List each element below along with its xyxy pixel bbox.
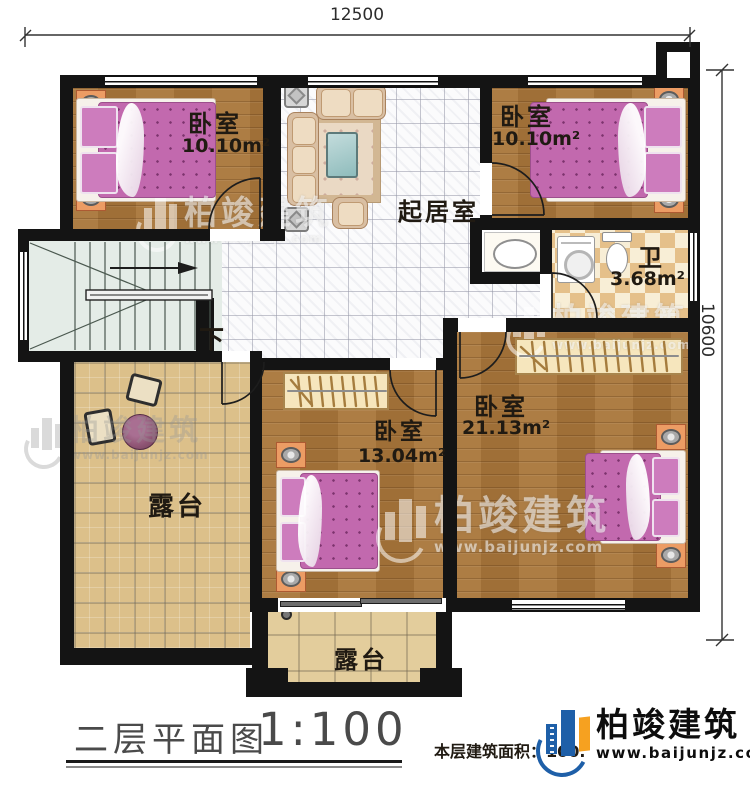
- door-gap: [480, 163, 492, 215]
- brand-logo-name: 柏竣建筑: [596, 708, 750, 741]
- bed-pillow: [644, 106, 682, 148]
- bed-pillow: [80, 152, 118, 194]
- terrace-round-table: [122, 414, 158, 450]
- corner-cabinet: [284, 207, 309, 232]
- window: [512, 598, 625, 612]
- wall-terrace-post: [420, 668, 462, 697]
- stairwell-floor: [29, 241, 222, 351]
- sofa-left: [287, 112, 319, 206]
- armchair: [332, 197, 368, 229]
- sink-counter: [484, 232, 542, 272]
- bed-sheet-fold: [298, 475, 322, 567]
- plan-scale-text: 1:100: [258, 703, 408, 756]
- room-label-bedroom-tl: 卧室: [188, 104, 242, 139]
- toilet-tank: [602, 232, 632, 242]
- room-area-bath: 3.68m²: [610, 268, 685, 290]
- room-area-bedroom-tl: 10.10m²: [182, 135, 270, 157]
- coffee-table: [326, 132, 358, 178]
- bed-pillow: [652, 457, 680, 495]
- wall-stair-bottom: [18, 351, 222, 362]
- nightstand: [656, 424, 686, 450]
- wardrobe: [283, 372, 389, 410]
- brand-logo-url: www.baijunjz.com: [596, 746, 750, 761]
- sofa-top: [316, 84, 386, 120]
- title-underline-thick: [66, 760, 402, 763]
- room-area-bedroom-mid: 13.04m²: [358, 445, 446, 467]
- door-gap: [210, 229, 260, 241]
- sliding-door-panel: [280, 601, 362, 607]
- bed-pillow: [644, 152, 682, 194]
- room-label-terrace-bottom: 露台: [334, 640, 388, 675]
- nightstand: [276, 442, 306, 468]
- window: [308, 75, 438, 88]
- wall-terrace-left-side: [60, 362, 74, 665]
- terrace-door-threshold: [222, 351, 250, 362]
- bed-pillow: [80, 106, 118, 148]
- room-label-living: 起居室: [398, 192, 479, 227]
- wall-terrace-post: [246, 668, 288, 697]
- brand-logo: 柏竣建筑 www.baijunjz.com: [538, 708, 750, 770]
- room-label-terrace-left: 露台: [148, 486, 206, 523]
- washing-machine: [557, 236, 595, 283]
- wall-bedroom-mid-left: [250, 351, 262, 612]
- room-label-bedroom-mid: 卧室: [374, 412, 426, 446]
- door-gap: [540, 274, 552, 318]
- wall-left-upper: [60, 88, 73, 241]
- room-area-bedroom-tr: 10.10m²: [492, 128, 580, 150]
- column-cavity: [667, 52, 690, 78]
- plan-title-text: 二层平面图: [74, 720, 269, 760]
- terrace-chair: [83, 408, 116, 446]
- plan-scale: 1:100: [258, 703, 408, 756]
- window: [105, 75, 257, 88]
- wall-bath-left: [540, 218, 552, 274]
- door-gap: [458, 318, 506, 332]
- wall-bedroom-tr-bottom: [480, 218, 700, 230]
- dimension-width-label: 12500: [322, 5, 392, 25]
- bed-pillow: [652, 499, 680, 537]
- room-label-bedroom-tr: 卧室: [500, 97, 554, 132]
- room-area-bedroom-right: 21.13m²: [462, 417, 550, 439]
- title-underline-thin: [66, 766, 402, 768]
- dimension-height-label: 10600: [697, 290, 717, 370]
- sliding-door-panel: [360, 598, 442, 604]
- floor-plan-canvas: 12500 10600 卧室 10.10m² 卧室 10.10m² 起居室 卫 …: [0, 0, 750, 785]
- brand-logo-icon: [538, 708, 596, 770]
- wall-partition-living: [263, 88, 281, 229]
- window: [18, 252, 29, 340]
- wall-terrace-left-bottom: [60, 648, 262, 665]
- plan-title: 二层平面图: [74, 712, 269, 761]
- nightstand: [656, 542, 686, 568]
- door-gap: [390, 358, 436, 370]
- stairs-direction-label: 下: [199, 320, 224, 356]
- wardrobe: [515, 338, 683, 375]
- window: [528, 75, 642, 88]
